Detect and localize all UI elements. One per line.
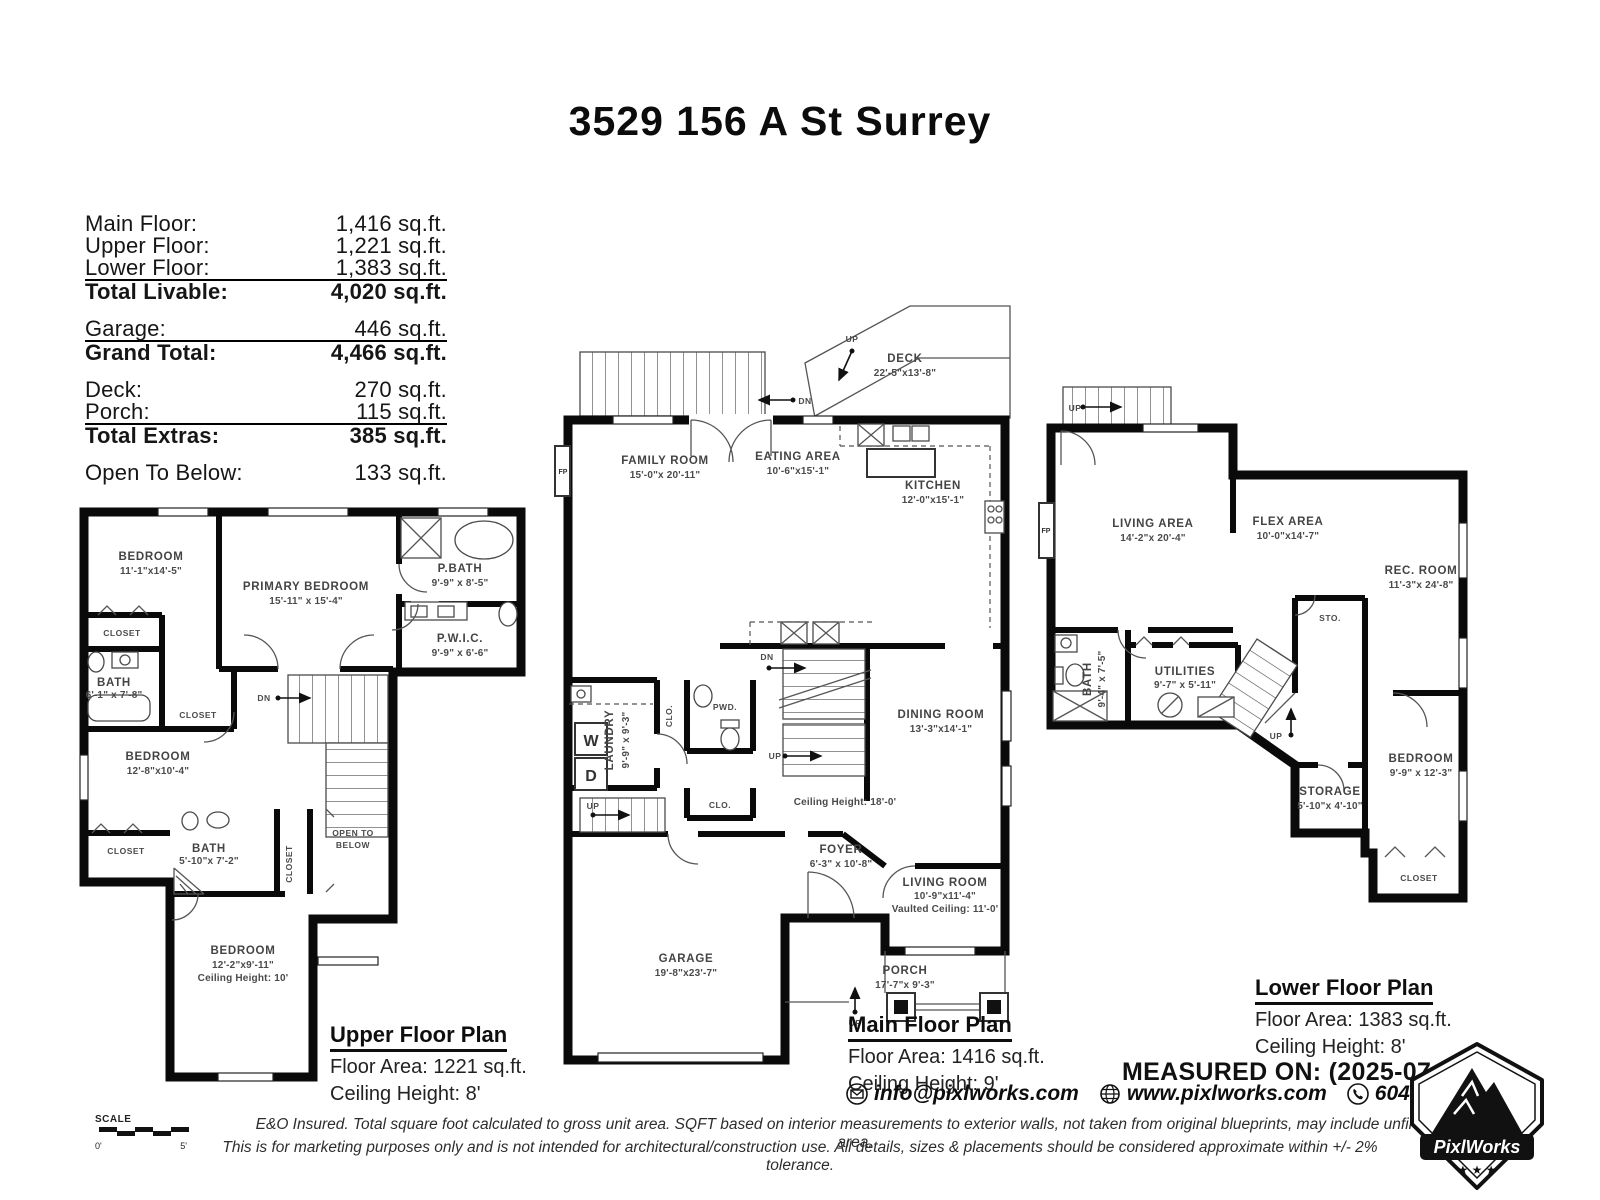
room-dims-bedroom: 9'-9" x 12'-3"	[1390, 768, 1453, 779]
room-dims-dining-room: 13'-3"x14'-1"	[910, 724, 972, 735]
upper-plan-heading: Upper Floor Plan Floor Area: 1221 sq.ft.…	[330, 1022, 527, 1106]
room-dims-laundry: 9'-9" x 9'-3"	[621, 712, 632, 769]
room-dims-bath1: 6'-1" x 7'-8"	[86, 690, 143, 701]
room-dims-bedroom2: 12'-8"x10'-4"	[127, 766, 189, 777]
open-to-below-label: OPEN TO	[332, 828, 374, 838]
logo-text: PixlWorks	[1434, 1137, 1521, 1157]
phone-icon	[1347, 1083, 1369, 1105]
email-item[interactable]: info@pixlworks.com	[846, 1082, 1079, 1106]
room-label-bath: BATH	[1082, 662, 1094, 696]
stat-value: 115 sq.ft.	[356, 401, 447, 423]
email-icon	[846, 1083, 868, 1105]
scale-zero: 0'	[95, 1141, 102, 1151]
room-label-laundry: LAUNDRY	[604, 710, 616, 771]
area-summary: Main Floor:1,416 sq.ft. Upper Floor:1,22…	[85, 213, 447, 484]
closet-label: CLO.	[709, 800, 731, 810]
room-dims-pwic: 9'-9" x 6'-6"	[432, 648, 489, 659]
room-dims-rec-room: 11'-3"x 24'-8"	[1389, 580, 1454, 591]
stat-value: 4,020 sq.ft.	[331, 281, 447, 303]
room-dims-living-area: 14'-2"x 20'-4"	[1120, 533, 1185, 544]
scale-label: SCALE	[95, 1114, 205, 1125]
website-item[interactable]: www.pixlworks.com	[1099, 1082, 1327, 1106]
stat-row: Lower Floor:1,383 sq.ft.	[85, 257, 447, 279]
closet-label: CLOSET	[179, 710, 217, 720]
room-label-living-area: LIVING AREA	[1112, 518, 1193, 530]
main-floor-plan-drawing: FP UP DN DECK 22'-5"x13'-8" FAMILY ROOM …	[553, 296, 1048, 1071]
room-dims-deck: 22'-5"x13'-8"	[874, 368, 936, 379]
stat-row: Deck:270 sq.ft.	[85, 379, 447, 401]
stat-label: Main Floor:	[85, 213, 197, 235]
room-dims-pbath: 9'-9" x 8'-5"	[432, 578, 489, 589]
room-label-bedroom1: BEDROOM	[119, 551, 184, 563]
room-dims-bedroom1: 11'-1"x14'-5"	[120, 566, 182, 577]
stairs-up-label: UP	[769, 751, 782, 761]
disclaimer-line-2: This is for marketing purposes only and …	[195, 1139, 1405, 1175]
washer-label: W	[583, 733, 599, 750]
room-label-bath2: BATH	[192, 843, 226, 855]
room-dims-garage: 19'-8"x23'-7"	[655, 968, 717, 979]
scale-bar-graphic	[95, 1125, 195, 1137]
storage-closet-label: STO.	[1319, 613, 1341, 623]
room-dims-family-room: 15'-0"x 20'-11"	[630, 470, 701, 481]
scale-five: 5'	[180, 1141, 187, 1151]
stairs-up-label: UP	[587, 801, 600, 811]
room-label-pwic: P.W.I.C.	[437, 633, 483, 645]
room-dims-bath: 9'-4" x 7'-5"	[1097, 651, 1108, 708]
room-label-bedroom2: BEDROOM	[126, 751, 191, 763]
powder-room-label: PWD.	[713, 702, 737, 712]
room-label-foyer: FOYER	[819, 844, 862, 856]
room-label-porch: PORCH	[882, 965, 927, 977]
room-dims-storage: 5'-10"x 4'-10"	[1297, 801, 1362, 812]
stairs-dn-label: DN	[257, 693, 270, 703]
stat-row-grand-total: Grand Total:4,466 sq.ft.	[85, 340, 447, 364]
lower-plan-title: Lower Floor Plan	[1255, 975, 1433, 1005]
lower-plan-floor-area: Floor Area: 1383 sq.ft.	[1255, 1009, 1452, 1032]
room-label-garage: GARAGE	[659, 953, 714, 965]
room-label-family-room: FAMILY ROOM	[621, 455, 709, 467]
stat-value: 1,221 sq.ft.	[336, 235, 447, 257]
stat-row-total-livable: Total Livable:4,020 sq.ft.	[85, 279, 447, 303]
room-label-flex-area: FLEX AREA	[1252, 516, 1323, 528]
email-text: info@pixlworks.com	[874, 1082, 1079, 1106]
room-label-deck: DECK	[887, 353, 922, 365]
room-dims-kitchen: 12'-0"x15'-1"	[902, 495, 964, 506]
room-label-pbath: P.BATH	[438, 563, 483, 575]
stat-label: Lower Floor:	[85, 257, 210, 279]
closet-label: CLO.	[664, 705, 674, 727]
room-label-storage: STORAGE	[1299, 786, 1361, 798]
ceiling-height-note: Ceiling Height: 18'-0'	[794, 797, 897, 808]
deck-dn-label: DN	[798, 396, 811, 406]
stat-label: Grand Total:	[85, 342, 217, 364]
main-plan-title: Main Floor Plan	[848, 1012, 1012, 1042]
room-label-dining-room: DINING ROOM	[898, 709, 985, 721]
floor-plan-page: 3529 156 A St Surrey Main Floor:1,416 sq…	[0, 0, 1600, 1200]
room-dims-primary-bedroom: 15'-11" x 15'-4"	[269, 596, 343, 607]
room-label-rec-room: REC. ROOM	[1385, 565, 1458, 577]
room-label-eating-area: EATING AREA	[755, 451, 841, 463]
lower-floor-plan-drawing: FP UP LIVING AREA 14'-2"x 20'-4" FLEX AR…	[1033, 383, 1473, 948]
room-dims-porch: 17'-7"x 9'-3"	[875, 980, 935, 991]
upper-plan-title: Upper Floor Plan	[330, 1022, 507, 1052]
stat-value: 1,383 sq.ft.	[336, 257, 447, 279]
room-dims-foyer: 6'-3" x 10'-8"	[810, 859, 873, 870]
room-dims-utilities: 9'-7" x 5'-11"	[1154, 680, 1216, 691]
upper-floor-plan-drawing: BEDROOM 11'-1"x14'-5" PRIMARY BEDROOM 15…	[78, 502, 533, 1092]
closet-label: CLOSET	[107, 846, 145, 856]
closet-label: CLOSET	[1400, 873, 1438, 883]
stat-label: Total Livable:	[85, 281, 228, 303]
upper-plan-floor-area: Floor Area: 1221 sq.ft.	[330, 1056, 527, 1079]
closet-label: CLOSET	[284, 845, 294, 883]
page-title: 3529 156 A St Surrey	[0, 98, 1560, 145]
main-plan-floor-area: Floor Area: 1416 sq.ft.	[848, 1046, 1045, 1069]
stat-value: 133 sq.ft.	[354, 462, 447, 484]
stat-value: 1,416 sq.ft.	[336, 213, 447, 235]
stairs-up-label: UP	[1069, 403, 1082, 413]
stat-value: 4,466 sq.ft.	[331, 342, 447, 364]
room-dims-living-room: 10'-9"x11'-4"	[914, 891, 976, 902]
globe-icon	[1099, 1083, 1121, 1105]
room-note-living-room: Vaulted Ceiling: 11'-0'	[892, 904, 999, 915]
stat-value: 446 sq.ft.	[354, 318, 447, 340]
logo-stars: ★ ★ ★	[1458, 1163, 1497, 1177]
stat-row: Open To Below:133 sq.ft.	[85, 462, 447, 484]
stat-label: Porch:	[85, 401, 150, 423]
stat-row: Main Floor:1,416 sq.ft.	[85, 213, 447, 235]
closet-label: CLOSET	[103, 628, 141, 638]
fireplace-label: FP	[1042, 528, 1051, 535]
room-label-bedroom3: BEDROOM	[211, 945, 276, 957]
room-label-utilities: UTILITIES	[1155, 666, 1216, 678]
room-dims-bath2: 5'-10"x 7'-2"	[179, 856, 239, 867]
room-dims-bedroom3: 12'-2"x9'-11"	[212, 960, 274, 971]
room-dims-flex-area: 10'-0"x14'-7"	[1257, 531, 1319, 542]
room-label-primary-bedroom: PRIMARY BEDROOM	[243, 581, 369, 593]
stat-label: Upper Floor:	[85, 235, 210, 257]
room-label-living-room: LIVING ROOM	[902, 877, 987, 889]
room-label-bedroom: BEDROOM	[1389, 753, 1454, 765]
dryer-label: D	[585, 768, 597, 785]
stat-row: Porch:115 sq.ft.	[85, 401, 447, 423]
stat-label: Deck:	[85, 379, 142, 401]
stat-label: Garage:	[85, 318, 166, 340]
upper-plan-ceiling: Ceiling Height: 8'	[330, 1083, 527, 1106]
room-label-bath1: BATH	[97, 677, 131, 689]
stairs-up-label: UP	[1270, 731, 1283, 741]
room-label-kitchen: KITCHEN	[905, 480, 961, 492]
stat-row: Upper Floor:1,221 sq.ft.	[85, 235, 447, 257]
open-to-below-label: BELOW	[336, 840, 371, 850]
stat-row: Garage:446 sq.ft.	[85, 318, 447, 340]
stat-label: Total Extras:	[85, 425, 219, 447]
website-text: www.pixlworks.com	[1127, 1082, 1327, 1106]
pixlworks-logo: PixlWorks ★ ★ ★	[1402, 1040, 1552, 1192]
stat-row-total-extras: Total Extras:385 sq.ft.	[85, 423, 447, 447]
scale-bar: SCALE 0' 5'	[95, 1114, 205, 1151]
stat-value: 385 sq.ft.	[350, 425, 447, 447]
stat-label: Open To Below:	[85, 462, 243, 484]
stairs-dn-label: DN	[760, 652, 773, 662]
deck-up-label: UP	[846, 334, 859, 344]
room-note-bedroom3: Ceiling Height: 10'	[198, 973, 289, 984]
fireplace-label: FP	[559, 469, 568, 476]
stat-value: 270 sq.ft.	[354, 379, 447, 401]
room-dims-eating-area: 10'-6"x15'-1"	[767, 466, 829, 477]
